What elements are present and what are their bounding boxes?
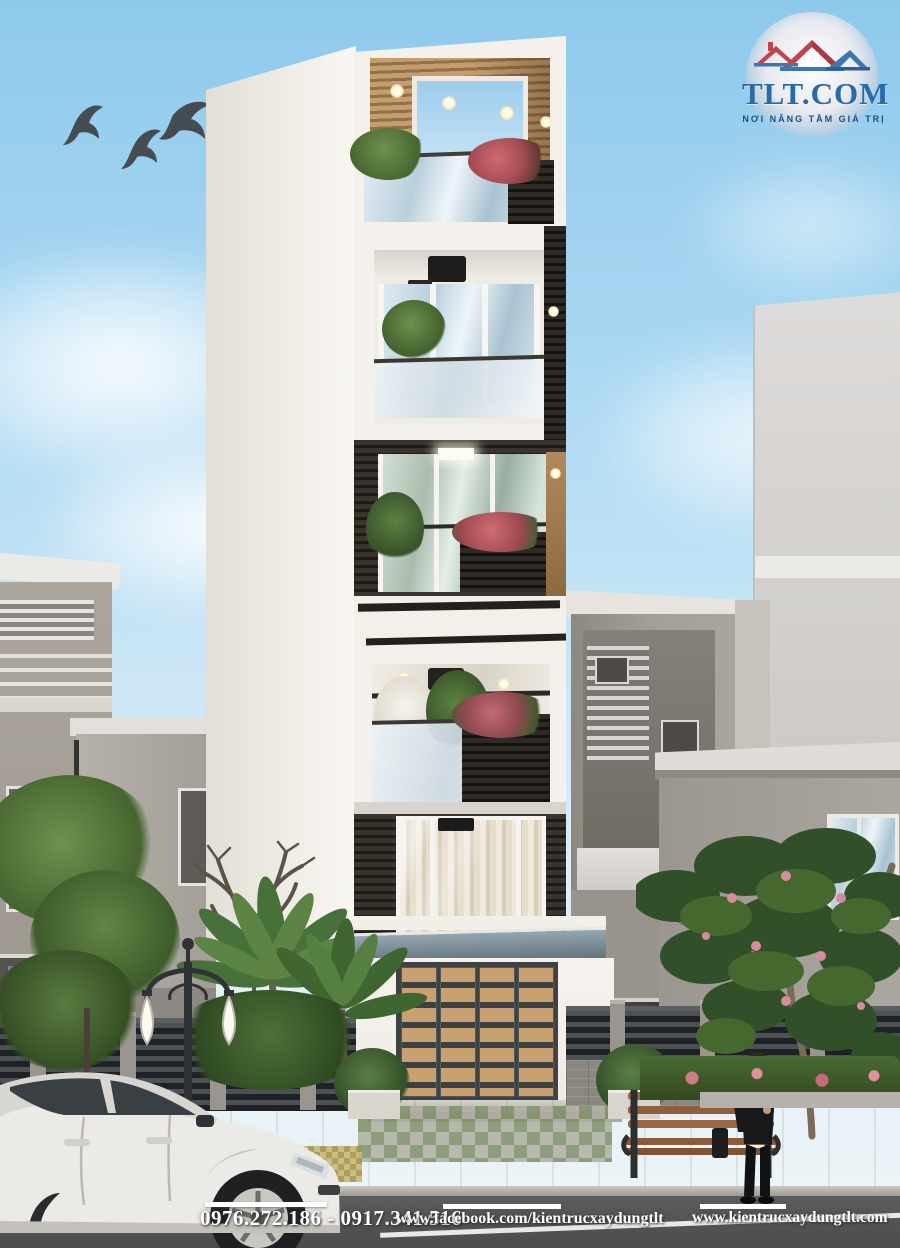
wall-lamp (540, 116, 552, 128)
floor3-ceiling-light (438, 448, 474, 460)
logo-slogan: NƠI NÂNG TẦM GIÁ TRỊ (742, 114, 886, 124)
ceiling-light (442, 96, 456, 110)
background-building-right-band (755, 556, 900, 578)
footer-website-url: www.kientrucxaydungtlt.com (692, 1209, 887, 1227)
rooftop-plant (350, 128, 426, 180)
floor2-flowers (452, 692, 552, 738)
door-panel (440, 967, 476, 1097)
ceiling-light (500, 106, 514, 120)
door-panel (518, 967, 554, 1097)
architectural-render-scene: TLT.COM NƠI NÂNG TẦM GIÁ TRỊ 0976.272.18… (0, 0, 900, 1248)
logo-roofs-icon (754, 34, 870, 78)
footer-facebook-url: www.facebook.com/kientrucxaydungtlt (396, 1210, 664, 1228)
floor4-glass-railing (374, 360, 544, 418)
entry-planter-left (348, 1090, 400, 1119)
logo-title: TLT.COM (742, 76, 886, 112)
floor4-side-slat-column (544, 226, 566, 442)
cloud (680, 150, 900, 300)
floor2-bottom-slab (354, 802, 566, 814)
rooftop-flowers (468, 138, 552, 184)
louver-strip (0, 600, 94, 640)
brand-logo: TLT.COM NƠI NÂNG TẦM GIÁ TRỊ (742, 12, 886, 142)
roof-slab (655, 742, 900, 772)
tree-planter (700, 1092, 900, 1108)
floor4-plant (382, 300, 446, 358)
floor3-flowers (452, 512, 550, 552)
floor3-palm-plant (366, 492, 424, 564)
door-panel (479, 967, 515, 1097)
tower-side-wall (206, 46, 356, 942)
balcony-railing (0, 654, 112, 700)
wall-lamp (550, 468, 561, 479)
small-window (595, 656, 629, 684)
wall-lamp (548, 306, 559, 317)
balcony-slab (0, 698, 112, 712)
background-building-right (753, 292, 900, 772)
flying-birds-icon (55, 85, 225, 200)
ceiling-light (498, 678, 510, 690)
floor1-ceiling-light-fixture (438, 818, 474, 831)
floor4-ceiling-light-fixture (428, 256, 466, 282)
ceiling-light (390, 84, 404, 98)
footer-dash (443, 1204, 561, 1209)
